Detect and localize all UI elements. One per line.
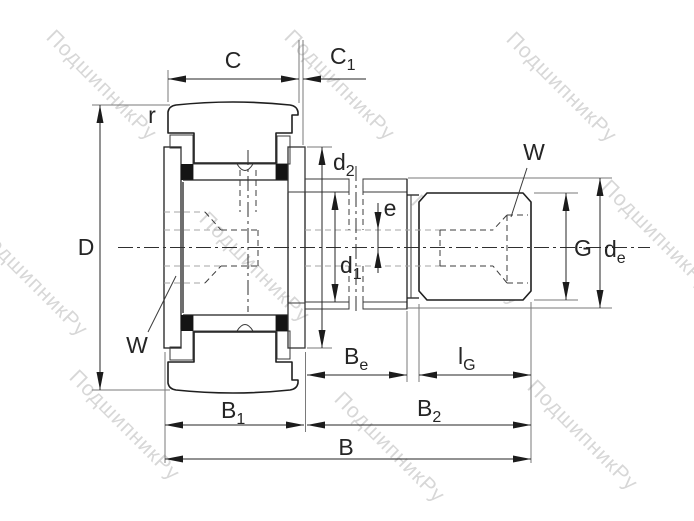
label-lG: lG [458, 343, 476, 374]
label-e: e [384, 195, 397, 221]
collar-strip-top [305, 179, 349, 192]
bearing-drawing-page: ПодшипникРу ПодшипникРу ПодшипникРу Подш… [0, 0, 694, 521]
outer-ring-bottom-section [168, 332, 298, 393]
thread-section [419, 193, 531, 300]
label-r: r [148, 102, 156, 128]
label-W-left: W [126, 332, 148, 358]
collar-flange-top-section [288, 147, 305, 192]
label-G: G [574, 235, 592, 261]
watermark-text: ПодшипникРу [523, 375, 643, 495]
watermark-text: ПодшипникРу [195, 207, 315, 327]
bearing-technical-drawing: ПодшипникРу ПодшипникРу ПодшипникРу Подш… [0, 0, 694, 521]
label-de: de [604, 236, 626, 267]
roller-row-top [193, 164, 276, 180]
label-d2: d2 [333, 149, 355, 180]
label-B2: B2 [417, 395, 441, 426]
cage-block [276, 164, 288, 180]
watermark-text: ПодшипникРу [42, 25, 162, 145]
label-B: B [338, 434, 353, 460]
label-Be: Be [344, 343, 368, 374]
cage-block [276, 315, 288, 331]
hex-socket-left-cone [205, 266, 221, 283]
label-D: D [78, 234, 95, 260]
label-B1: B1 [221, 397, 245, 428]
watermark-text: ПодшипникРу [502, 27, 622, 147]
label-d1: d1 [340, 252, 362, 283]
outer-ring-top-section [168, 102, 298, 163]
cage-block [181, 315, 193, 331]
collar-strip-bottom [363, 302, 407, 309]
cage-block [181, 164, 193, 180]
collar-strip-top [363, 179, 407, 192]
label-C: C [225, 47, 242, 73]
roller-row-bottom [193, 315, 276, 331]
label-W-right: W [523, 139, 545, 165]
